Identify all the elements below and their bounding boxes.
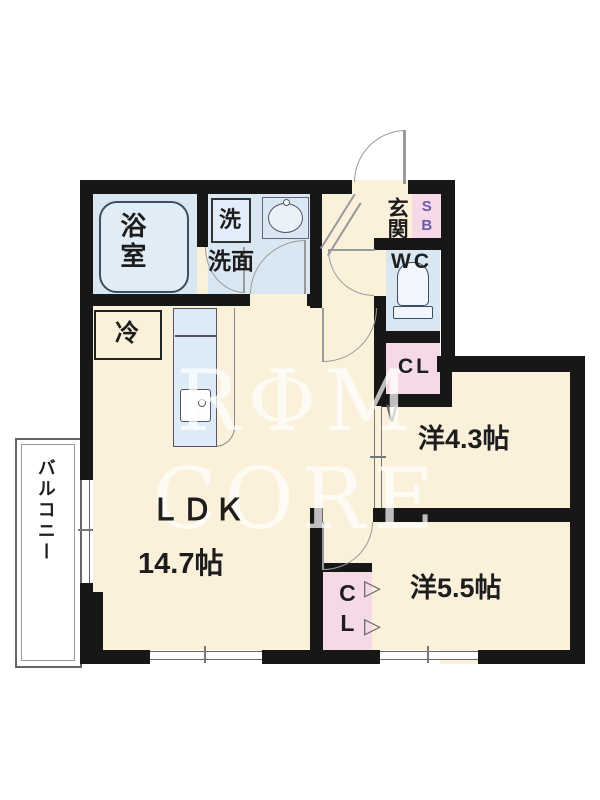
kitchen-counter-divider [175, 335, 216, 337]
wall-top-left [80, 180, 352, 194]
wall-washroom-stub [307, 294, 322, 306]
window-ldk-south-tick [204, 646, 206, 663]
wall-bath-bottom [80, 294, 250, 306]
entrance-door-leaf [403, 130, 406, 184]
label-entrance: 玄関 [384, 197, 408, 239]
window-ldk-south [150, 651, 262, 660]
window-room55-south-tick [427, 646, 429, 663]
wall-bottom-right [478, 650, 585, 664]
label-bathroom: 浴室 [116, 212, 146, 272]
label-western-room-large: 洋5.5帖 [410, 573, 502, 604]
wc-door-leaf [328, 249, 375, 251]
wall-hall-bottom [374, 238, 455, 250]
label-ldk-size: 14.7帖 [138, 548, 223, 581]
label-ldk: ＬＤＫ [150, 494, 246, 529]
wall-bath-washroom [197, 194, 208, 247]
toilet-base [393, 306, 433, 319]
entrance-door-arc [354, 130, 406, 182]
entrance-door-gap [352, 180, 408, 196]
label-washroom: 洗面 [208, 248, 254, 274]
wall-hall-washroom [310, 194, 322, 308]
washroom-door-leaf [304, 240, 306, 294]
label-wc: WC [391, 250, 432, 274]
wall-right-upper [441, 180, 455, 372]
vanity-sink-bowl [268, 203, 303, 233]
closet-lower-bifold-mark-2: ▷ [364, 613, 381, 639]
vanity-tap [283, 199, 290, 206]
label-refrigerator: 冷 [115, 320, 139, 348]
label-western-room-small: 洋4.3帖 [418, 424, 510, 455]
window-room55-south [380, 651, 478, 660]
label-shoe-box: SB [418, 198, 435, 236]
label-balcony: バルコニー [35, 458, 56, 563]
closet-lower-bifold-mark-1: ▷ [364, 575, 381, 601]
wall-wc-cl-divider [386, 331, 440, 343]
wall-bottom-ldk [80, 650, 150, 664]
label-washer: 洗 [219, 207, 241, 232]
label-closet-lower: CL [334, 580, 360, 640]
label-closet-upper: CL [398, 355, 432, 379]
